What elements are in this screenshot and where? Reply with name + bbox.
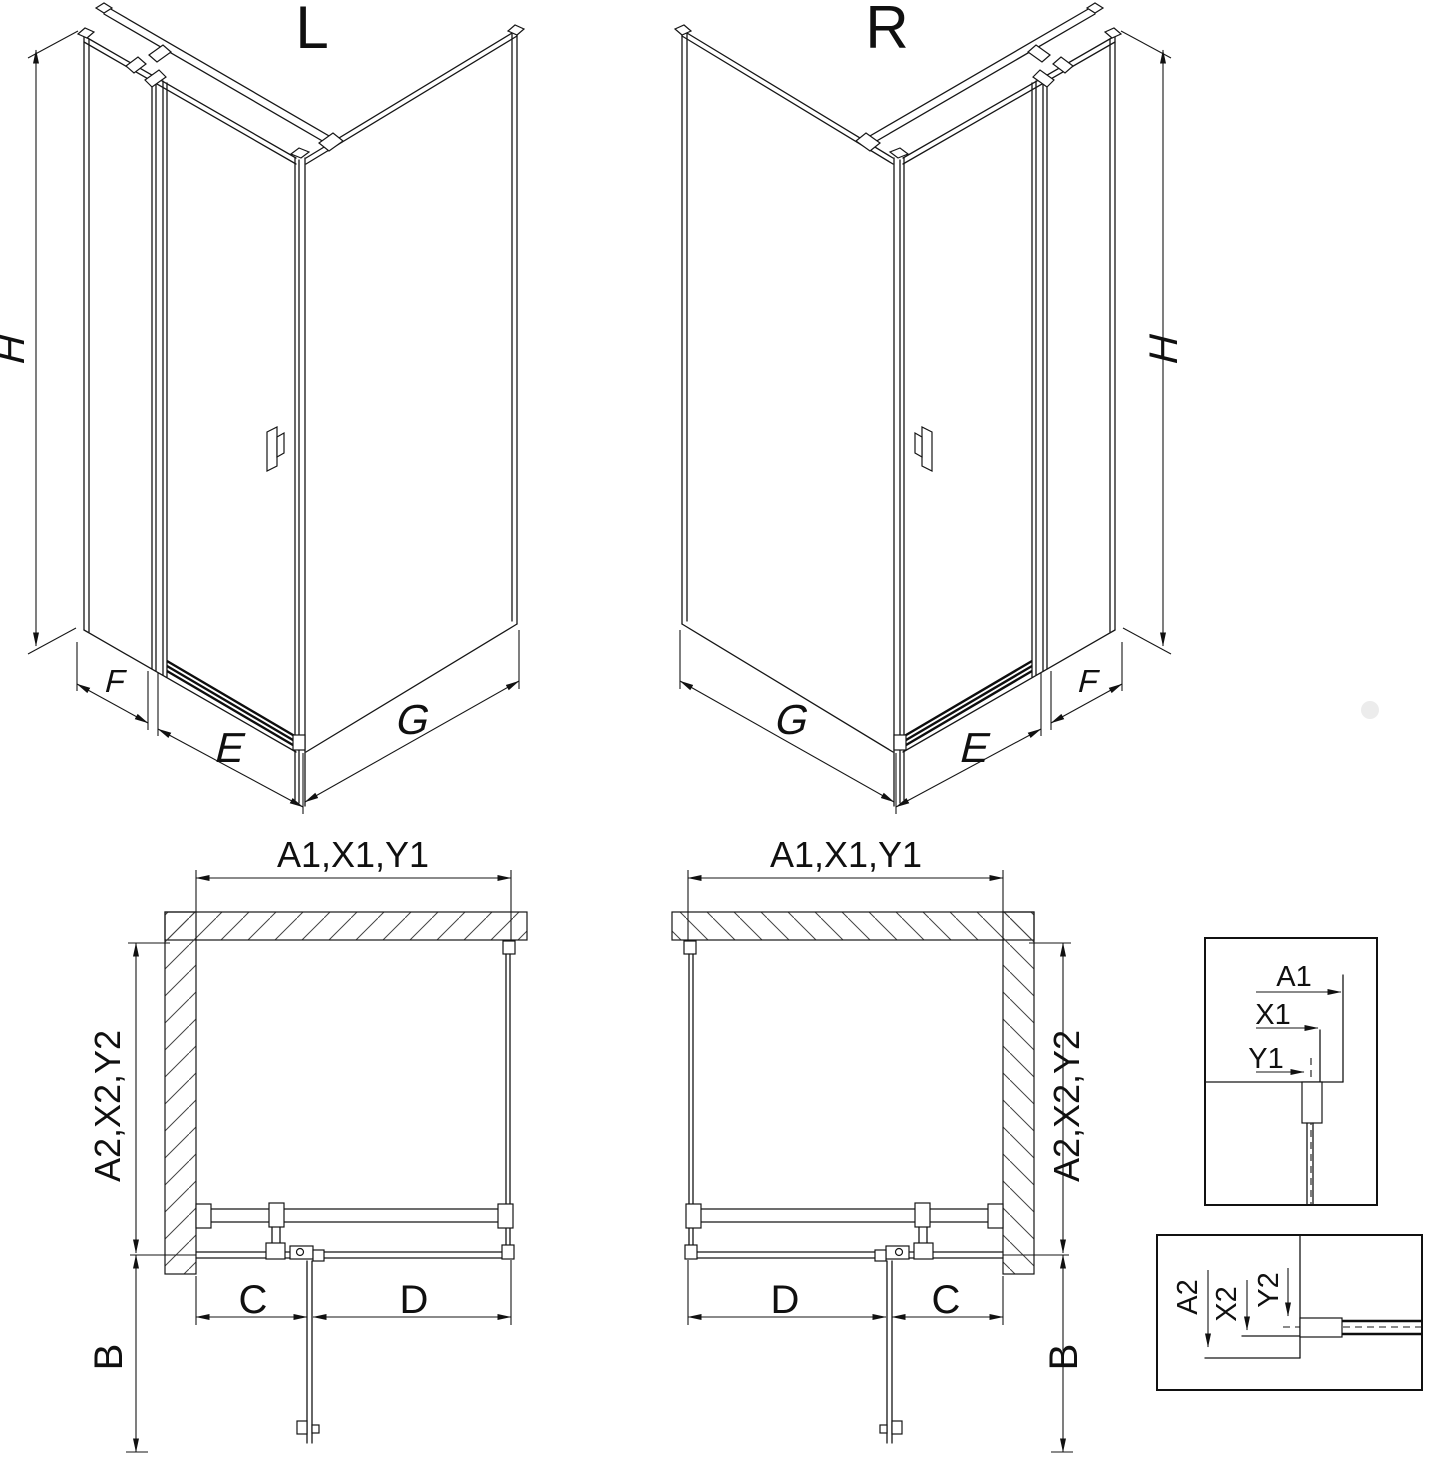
detail-label-a2: A2 xyxy=(1172,1279,1204,1314)
threshold-end-block xyxy=(293,735,305,750)
detail-label-a1: A1 xyxy=(1276,961,1311,993)
plan-door-handle xyxy=(297,1421,307,1434)
detail-label-y1: Y1 xyxy=(1248,1043,1283,1075)
technical-drawing-page: L R H F E G H F E G A1,X1,Y1 A2,X2,Y2 B … xyxy=(0,0,1430,1460)
dim-label-height-right: H xyxy=(1141,328,1186,368)
glass-profile-section xyxy=(1302,1082,1322,1123)
wall-section-top xyxy=(165,912,527,940)
wall-section-side xyxy=(165,912,196,1274)
detail-label-y2: Y2 xyxy=(1253,1272,1285,1307)
glass-profile-section xyxy=(1300,1318,1342,1337)
dim-label-e-left: E xyxy=(211,725,251,772)
detail-label-x1: X1 xyxy=(1255,999,1290,1031)
dim-label-b-plan-right: B xyxy=(1042,1344,1086,1371)
dim-label-height-left: H xyxy=(0,328,33,368)
dim-label-c-plan-right: C xyxy=(932,1278,961,1322)
dim-label-d-plan-right: D xyxy=(771,1278,800,1322)
dim-label-d-plan-left: D xyxy=(400,1278,429,1322)
dim-label-width-plan-left: A1,X1,Y1 xyxy=(277,834,429,875)
detail-label-x2: X2 xyxy=(1211,1286,1243,1321)
plan-view-right xyxy=(672,870,1073,1452)
label-view-right: R xyxy=(865,0,908,61)
shower-enclosure-diagram: L R H F E G H F E G A1,X1,Y1 A2,X2,Y2 B … xyxy=(0,0,1430,1460)
dim-label-f-right: F xyxy=(1075,663,1103,698)
door-handle xyxy=(267,427,277,471)
dim-label-e-right: E xyxy=(956,725,996,772)
dim-label-depth-plan-left: A2,X2,Y2 xyxy=(87,1030,128,1182)
stain-artifact xyxy=(1361,701,1379,719)
iso-view-right xyxy=(675,3,1171,814)
plan-view-left xyxy=(126,870,527,1452)
dim-label-depth-plan-right: A2,X2,Y2 xyxy=(1046,1030,1087,1182)
dim-label-b-plan-left: B xyxy=(87,1344,131,1371)
dim-label-c-plan-left: C xyxy=(239,1278,268,1322)
dim-label-g-left: G xyxy=(391,697,435,744)
dim-label-f-left: F xyxy=(102,663,130,698)
dim-label-g-right: G xyxy=(770,697,814,744)
dim-label-width-plan-right: A1,X1,Y1 xyxy=(770,834,922,875)
label-view-left: L xyxy=(295,0,328,61)
bar-end-cap xyxy=(96,3,112,13)
